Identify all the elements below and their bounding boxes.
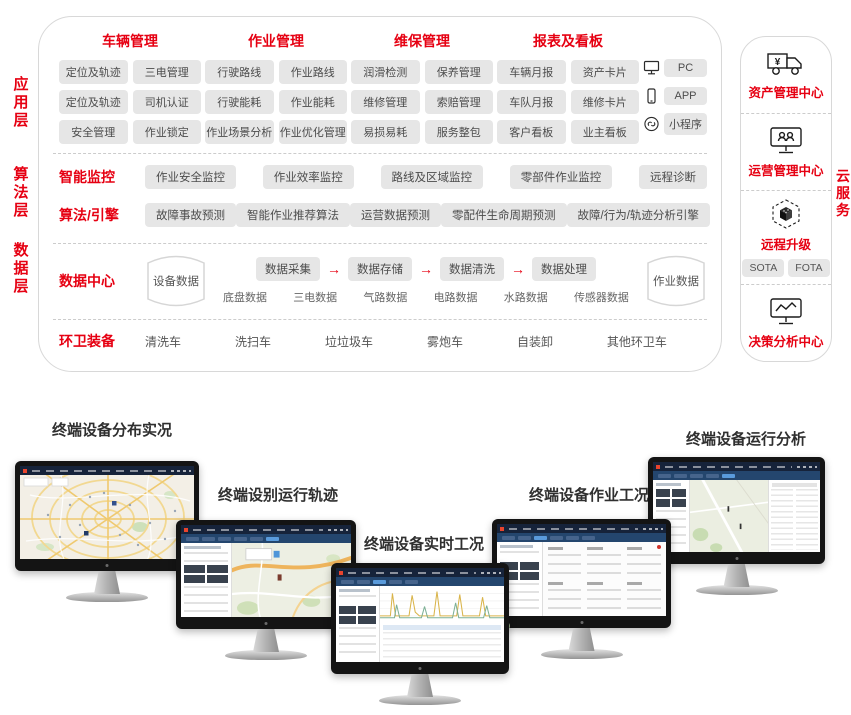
intelligent-monitoring-row: 智能监控 作业安全监控 作业效率监控 路线及区域监控 零部件作业监控 远程诊断 (59, 165, 707, 189)
app-logo-dot (184, 528, 188, 532)
screen-toolbar (497, 533, 666, 542)
decision-analysis-center: 决策分析中心 (741, 285, 831, 361)
cloud-item-label: 远程升级 (761, 234, 811, 253)
arrow-right-icon: → (419, 261, 433, 277)
equipment-item: 其他环卫车 (607, 333, 667, 350)
signal-chart-thumbnail (380, 586, 504, 623)
app-pill: 车辆月报 (497, 60, 566, 84)
monitor-stand (253, 629, 279, 652)
cylinder-label: 作业数据 (645, 253, 707, 309)
group-reports-dashboards: 报表及看板 车辆月报资产卡片 车队月报维修卡片 客户看板业主看板 (497, 31, 639, 150)
screen-map-overview (20, 466, 194, 559)
data-source: 传感器数据 (574, 289, 629, 305)
cloud-services-panel: ¥ 资产管理中心 运营管理中心 (740, 36, 832, 362)
sota-tag: SOTA (742, 259, 784, 277)
screen-toolbar (336, 577, 504, 586)
algo-pill: 远程诊断 (639, 165, 707, 189)
data-source: 三电数据 (293, 289, 337, 305)
terminal-types-group: PC APP 小程序 (643, 31, 707, 150)
algo-pill: 运营数据预测 (350, 203, 441, 227)
algo-pill: 故障/行为/轨迹分析引擎 (567, 203, 710, 227)
monitor-caption: 终端设别运行轨迹 (218, 484, 338, 505)
layer-divider (53, 153, 707, 154)
monitor-frame (331, 563, 509, 674)
app-pill: 维修卡片 (571, 90, 640, 114)
app-logo-dot (23, 469, 27, 473)
monitor-realtime-status (331, 563, 509, 705)
app-pill: 行驶能耗 (205, 90, 274, 114)
layer-label-data: 数据层 (12, 242, 30, 296)
screen-track-map (181, 525, 351, 617)
algo-pill: 零部件作业监控 (510, 165, 613, 189)
monitor-caption: 终端设备运行分析 (686, 428, 806, 449)
app-pill: 润滑检测 (351, 60, 420, 84)
data-pipeline: 数据采集 → 数据存储 → 数据清洗 → 数据处理 底盘数据 三电数据 气路数据… (221, 257, 631, 305)
app-pill: 作业路线 (279, 60, 348, 84)
monitor-frame (648, 457, 825, 564)
data-layer-section: 数据中心 设备数据 数据采集 → 数据存储 → 数据清洗 → 数据处理 底盘数据… (59, 253, 707, 309)
row-label: 数据中心 (59, 271, 145, 291)
cylinder-label: 设备数据 (145, 253, 207, 309)
operation-management-center: 运营管理中心 (741, 114, 831, 191)
layer-divider (53, 243, 707, 244)
data-source: 底盘数据 (223, 289, 267, 305)
app-pill: 车队月报 (497, 90, 566, 114)
monitor-caption: 终端设备实时工况 (364, 533, 484, 554)
terminal-pill: 小程序 (664, 113, 707, 135)
app-pill: 司机认证 (133, 90, 202, 114)
equipment-item: 垃垃圾车 (325, 333, 373, 350)
app-pill: 保养管理 (425, 60, 494, 84)
algorithm-engine-row: 算法/引擎 故障事故预测 智能作业推荐算法 运营数据预测 零配件生命周期预测 故… (59, 203, 707, 227)
app-pill: 定位及轨迹 (59, 60, 128, 84)
data-source: 水路数据 (504, 289, 548, 305)
group-title: 维保管理 (351, 31, 493, 51)
app-pill: 作业能耗 (279, 90, 348, 114)
app-pill: 业主看板 (571, 120, 640, 144)
equipment-item: 雾炮车 (427, 333, 463, 350)
pipeline-pill: 数据处理 (532, 257, 596, 281)
app-pill: 客户看板 (497, 120, 566, 144)
app-pill: 易损易耗 (351, 120, 420, 144)
screen-work-form (497, 524, 666, 616)
algo-pill: 故障事故预测 (145, 203, 236, 227)
pc-icon (643, 60, 660, 76)
monitor-frame (15, 461, 199, 571)
app-pill: 行驶路线 (205, 60, 274, 84)
monitor-stand (569, 628, 595, 651)
monitor-frame (176, 520, 356, 629)
monitor-users-icon (768, 126, 804, 156)
app-logo-dot (500, 527, 504, 531)
row-label: 智能监控 (59, 167, 145, 187)
algo-pill: 零配件生命周期预测 (441, 203, 567, 227)
monitor-caption: 终端设备作业工况 (529, 484, 649, 505)
cloud-item-label: 资产管理中心 (748, 82, 823, 101)
svg-text:¥: ¥ (775, 57, 781, 68)
data-source: 气路数据 (363, 289, 407, 305)
arrow-right-icon: → (511, 261, 525, 277)
yen-truck-icon: ¥ (766, 50, 806, 78)
monitor-stand (407, 674, 433, 697)
app-pill: 维修管理 (351, 90, 420, 114)
data-source-labels: 底盘数据 三电数据 气路数据 电路数据 水路数据 传感器数据 (221, 289, 631, 305)
monitor-stand (94, 571, 120, 594)
app-pill: 作业场景分析 (205, 120, 274, 144)
terminal-pill: APP (664, 87, 707, 105)
page: 应用层 算法层 数据层 车辆管理 定位及轨迹三电管理 定位及轨迹司机认证 安全管… (0, 0, 851, 715)
algo-pill: 智能作业推荐算法 (236, 203, 350, 227)
monitor-caption: 终端设备分布实况 (52, 419, 172, 440)
app-logo-dot (339, 571, 343, 575)
arrow-right-icon: → (327, 261, 341, 277)
cloud-item-label: 决策分析中心 (748, 331, 823, 350)
application-layer-section: 车辆管理 定位及轨迹三电管理 定位及轨迹司机认证 安全管理作业锁定 作业管理 行… (59, 31, 707, 150)
app-pill: 定位及轨迹 (59, 90, 128, 114)
group-maintenance-management: 维保管理 润滑检测保养管理 维修管理索赔管理 易损易耗服务整包 (351, 31, 493, 150)
smartphone-icon (643, 88, 660, 104)
monitor-work-condition (492, 519, 671, 659)
layer-label-algorithm: 算法层 (12, 166, 30, 220)
app-pill: 作业锁定 (133, 120, 202, 144)
group-operation-management: 作业管理 行驶路线作业路线 行驶能耗作业能耗 作业场景分析作业优化管理 (205, 31, 347, 150)
app-pill: 服务整包 (425, 120, 494, 144)
row-label: 环卫装备 (59, 331, 145, 351)
screen-side-panel (336, 586, 380, 662)
asset-management-center: ¥ 资产管理中心 (741, 37, 831, 114)
monitor-stand (724, 564, 750, 587)
equipment-item: 清洗车 (145, 333, 181, 350)
pipeline-pill: 数据清洗 (440, 257, 504, 281)
screen-toolbar (653, 471, 820, 480)
monitor-run-analysis (648, 457, 825, 595)
algo-pill: 作业安全监控 (145, 165, 236, 189)
architecture-box: 车辆管理 定位及轨迹三电管理 定位及轨迹司机认证 安全管理作业锁定 作业管理 行… (38, 16, 722, 372)
equipment-item: 自装卸 (517, 333, 553, 350)
cloud-item-label: 运营管理中心 (748, 160, 823, 179)
ota-cube-icon (769, 198, 803, 230)
layer-divider (53, 319, 707, 320)
screen-realtime-chart (336, 568, 504, 662)
row-label: 算法/引擎 (59, 205, 145, 225)
algo-pill: 作业效率监控 (263, 165, 354, 189)
algorithm-layer-section: 智能监控 作业安全监控 作业效率监控 路线及区域监控 零部件作业监控 远程诊断 … (59, 165, 707, 241)
app-logo-dot (656, 465, 660, 469)
group-title: 报表及看板 (497, 31, 639, 51)
group-vehicle-management: 车辆管理 定位及轨迹三电管理 定位及轨迹司机认证 安全管理作业锁定 (59, 31, 201, 150)
equipment-section: 环卫装备 清洗车 洗扫车 垃垃圾车 雾炮车 自装卸 其他环卫车 (59, 331, 707, 351)
monitor-frame (492, 519, 671, 628)
remote-upgrade-center: 远程升级 SOTA FOTA (741, 191, 831, 285)
analysis-map-thumbnail (690, 480, 769, 552)
app-pill: 索赔管理 (425, 90, 494, 114)
equipment-item: 洗扫车 (235, 333, 271, 350)
screen-toolbar (181, 534, 351, 543)
data-source: 电路数据 (434, 289, 478, 305)
screen-analysis (653, 462, 820, 552)
app-pill: 三电管理 (133, 60, 202, 84)
device-data-cylinder: 设备数据 (145, 253, 207, 309)
monitor-device-distribution (15, 461, 199, 602)
miniprogram-link-icon (643, 116, 660, 132)
layer-label-application: 应用层 (12, 76, 30, 130)
screen-list-panel (768, 480, 820, 552)
app-pill: 资产卡片 (571, 60, 640, 84)
group-title: 车辆管理 (59, 31, 201, 51)
table-header-strip (383, 625, 501, 630)
form-columns (543, 542, 666, 616)
screen-side-panel (181, 543, 232, 617)
app-pill: 安全管理 (59, 120, 128, 144)
cloud-side-label: 云服务 (834, 168, 851, 219)
algo-pill: 路线及区域监控 (381, 165, 484, 189)
fota-tag: FOTA (788, 259, 829, 277)
alert-dot (657, 545, 661, 549)
app-pill: 作业优化管理 (279, 120, 348, 144)
pipeline-pill: 数据采集 (256, 257, 320, 281)
table-rows-strip (383, 632, 501, 659)
city-map-thumbnail (20, 475, 194, 559)
pipeline-pill: 数据存储 (348, 257, 412, 281)
terminal-pill: PC (664, 59, 707, 77)
group-title: 作业管理 (205, 31, 347, 51)
work-data-cylinder: 作业数据 (645, 253, 707, 309)
monitor-run-track (176, 520, 356, 660)
monitor-chart-icon (768, 297, 804, 327)
